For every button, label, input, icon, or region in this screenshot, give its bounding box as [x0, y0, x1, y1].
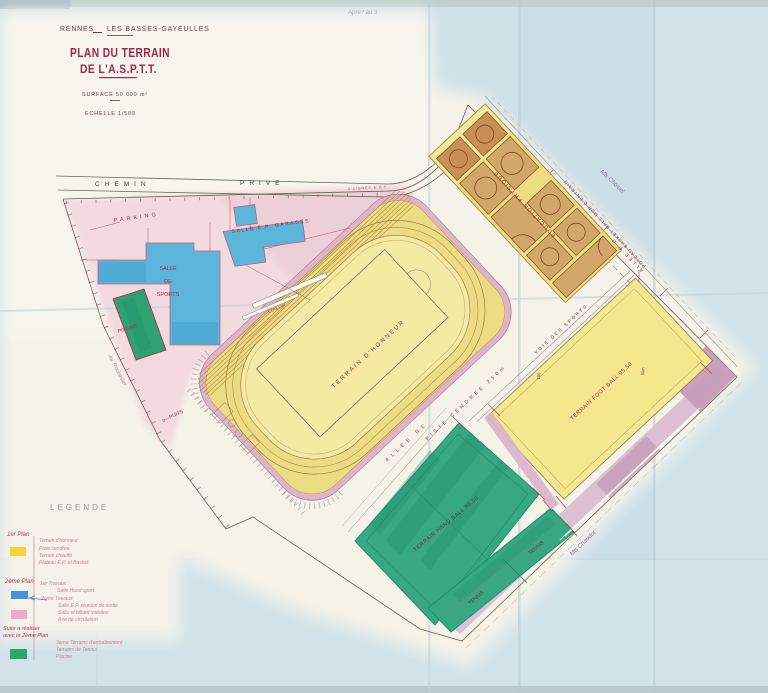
svg-text:DE L'A.S.P.T.T.: DE L'A.S.P.T.T. — [80, 63, 157, 76]
svg-text:Terrain chauffé: Terrain chauffé — [39, 553, 72, 559]
svg-text:avec le 2ème Plan: avec le 2ème Plan — [3, 633, 48, 639]
svg-text:1er Plan: 1er Plan — [7, 532, 30, 538]
svg-text:Salle et billard intérieur: Salle et billard intérieur — [58, 610, 109, 616]
svg-text:ECHELLE 1/500: ECHELLE 1/500 — [85, 111, 136, 117]
svg-text:Piscine: Piscine — [56, 654, 72, 660]
svg-text:Salle Hand sport: Salle Hand sport — [57, 588, 95, 594]
svg-text:Terrain d'honneur: Terrain d'honneur — [39, 538, 78, 544]
svg-text:PRIVE: PRIVE — [240, 180, 285, 187]
svg-text:LES BASSES-GAYEULLES: LES BASSES-GAYEULLES — [107, 26, 210, 33]
svg-text:SURFACE 50 000 m²: SURFACE 50 000 m² — [82, 92, 148, 98]
svg-text:Plateau E.P. et Basket: Plateau E.P. et Basket — [39, 560, 89, 566]
svg-text:Salle E.P. réunion de sortie: Salle E.P. réunion de sortie — [58, 603, 118, 609]
svg-text:50m: 50m — [640, 367, 646, 376]
svg-text:CHEMIN: CHEMIN — [95, 181, 151, 188]
svg-text:Aire de circulation: Aire de circulation — [57, 617, 98, 623]
svg-text:Terrains de Tennis: Terrains de Tennis — [56, 647, 97, 653]
svg-text:1er Travaux: 1er Travaux — [40, 581, 67, 587]
svg-text:2ème Plan: 2ème Plan — [4, 579, 34, 585]
svg-text:RENNES: RENNES — [60, 26, 94, 33]
svg-text:PLAN DU TERRAIN: PLAN DU TERRAIN — [70, 46, 170, 60]
svg-text:Piste cendrée: Piste cendrée — [39, 546, 70, 552]
svg-text:Suite à réaliser: Suite à réaliser — [3, 626, 41, 632]
svg-text:SALLE: SALLE — [159, 266, 176, 272]
svg-text:Apre? au 3: Apre? au 3 — [347, 10, 378, 16]
svg-text:100: 100 — [536, 372, 542, 380]
svg-text:3ème Terrains d'entraînement: 3ème Terrains d'entraînement — [56, 640, 123, 646]
svg-text:2ème Travaux: 2ème Travaux — [40, 596, 73, 602]
svg-text:LEGENDE: LEGENDE — [50, 503, 109, 512]
svg-text:DE: DE — [164, 279, 172, 285]
svg-text:SPORTS: SPORTS — [157, 292, 180, 298]
